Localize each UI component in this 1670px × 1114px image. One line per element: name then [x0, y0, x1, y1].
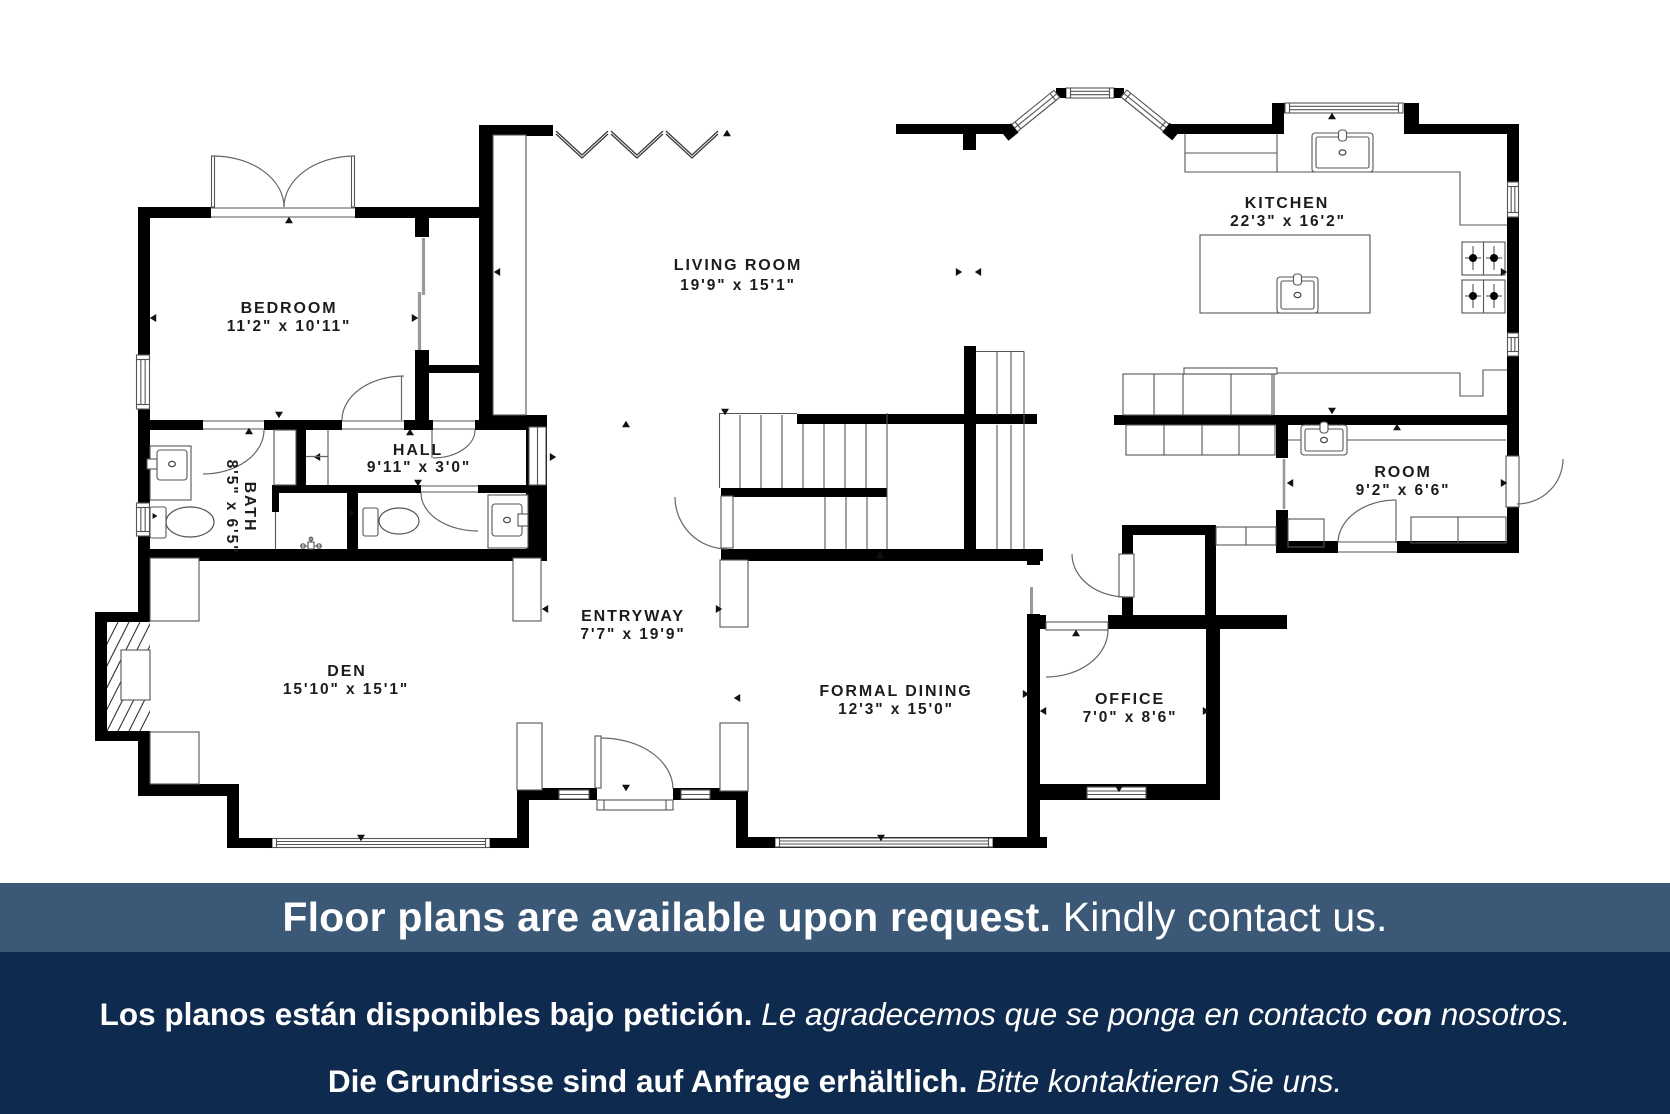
- svg-text:22'3" x 16'2": 22'3" x 16'2": [1230, 213, 1346, 230]
- svg-text:OFFICE: OFFICE: [1095, 691, 1165, 708]
- svg-text:KITCHEN: KITCHEN: [1245, 195, 1329, 212]
- svg-text:BEDROOM: BEDROOM: [241, 300, 338, 317]
- svg-text:ROOM: ROOM: [1374, 464, 1431, 481]
- svg-text:9'2" x 6'6": 9'2" x 6'6": [1356, 482, 1451, 499]
- svg-text:12'3" x 15'0": 12'3" x 15'0": [838, 701, 954, 718]
- svg-text:7'7" x 19'9": 7'7" x 19'9": [580, 626, 685, 643]
- svg-text:15'10" x 15'1": 15'10" x 15'1": [283, 681, 409, 698]
- svg-text:DEN: DEN: [327, 663, 366, 680]
- svg-text:LIVING ROOM: LIVING ROOM: [674, 257, 802, 274]
- svg-text:9'11" x 3'0": 9'11" x 3'0": [367, 459, 471, 476]
- svg-text:11'2" x 10'11": 11'2" x 10'11": [227, 318, 352, 335]
- svg-text:7'0" x 8'6": 7'0" x 8'6": [1083, 709, 1178, 726]
- svg-text:ENTRYWAY: ENTRYWAY: [581, 608, 685, 625]
- svg-text:19'9" x 15'1": 19'9" x 15'1": [680, 277, 796, 294]
- svg-text:HALL: HALL: [393, 442, 443, 459]
- svg-text:FORMAL DINING: FORMAL DINING: [819, 683, 972, 700]
- svg-text:8'5" x 6'5": 8'5" x 6'5": [223, 460, 240, 555]
- svg-text:BATH: BATH: [241, 482, 258, 533]
